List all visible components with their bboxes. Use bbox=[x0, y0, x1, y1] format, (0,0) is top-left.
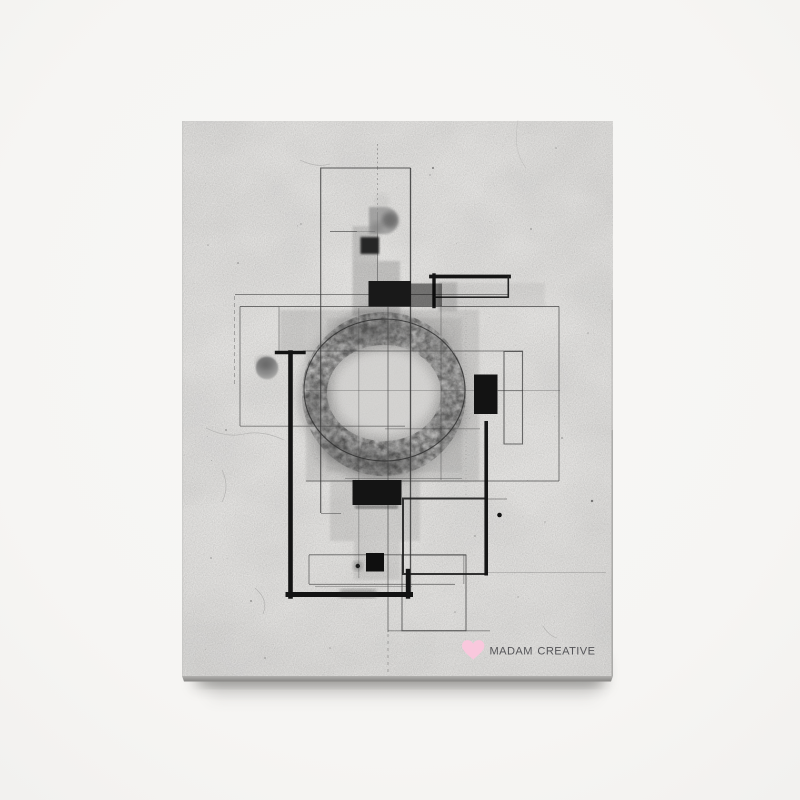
svg-text:MADAMCREATIVE: MADAMCREATIVE bbox=[490, 646, 596, 658]
